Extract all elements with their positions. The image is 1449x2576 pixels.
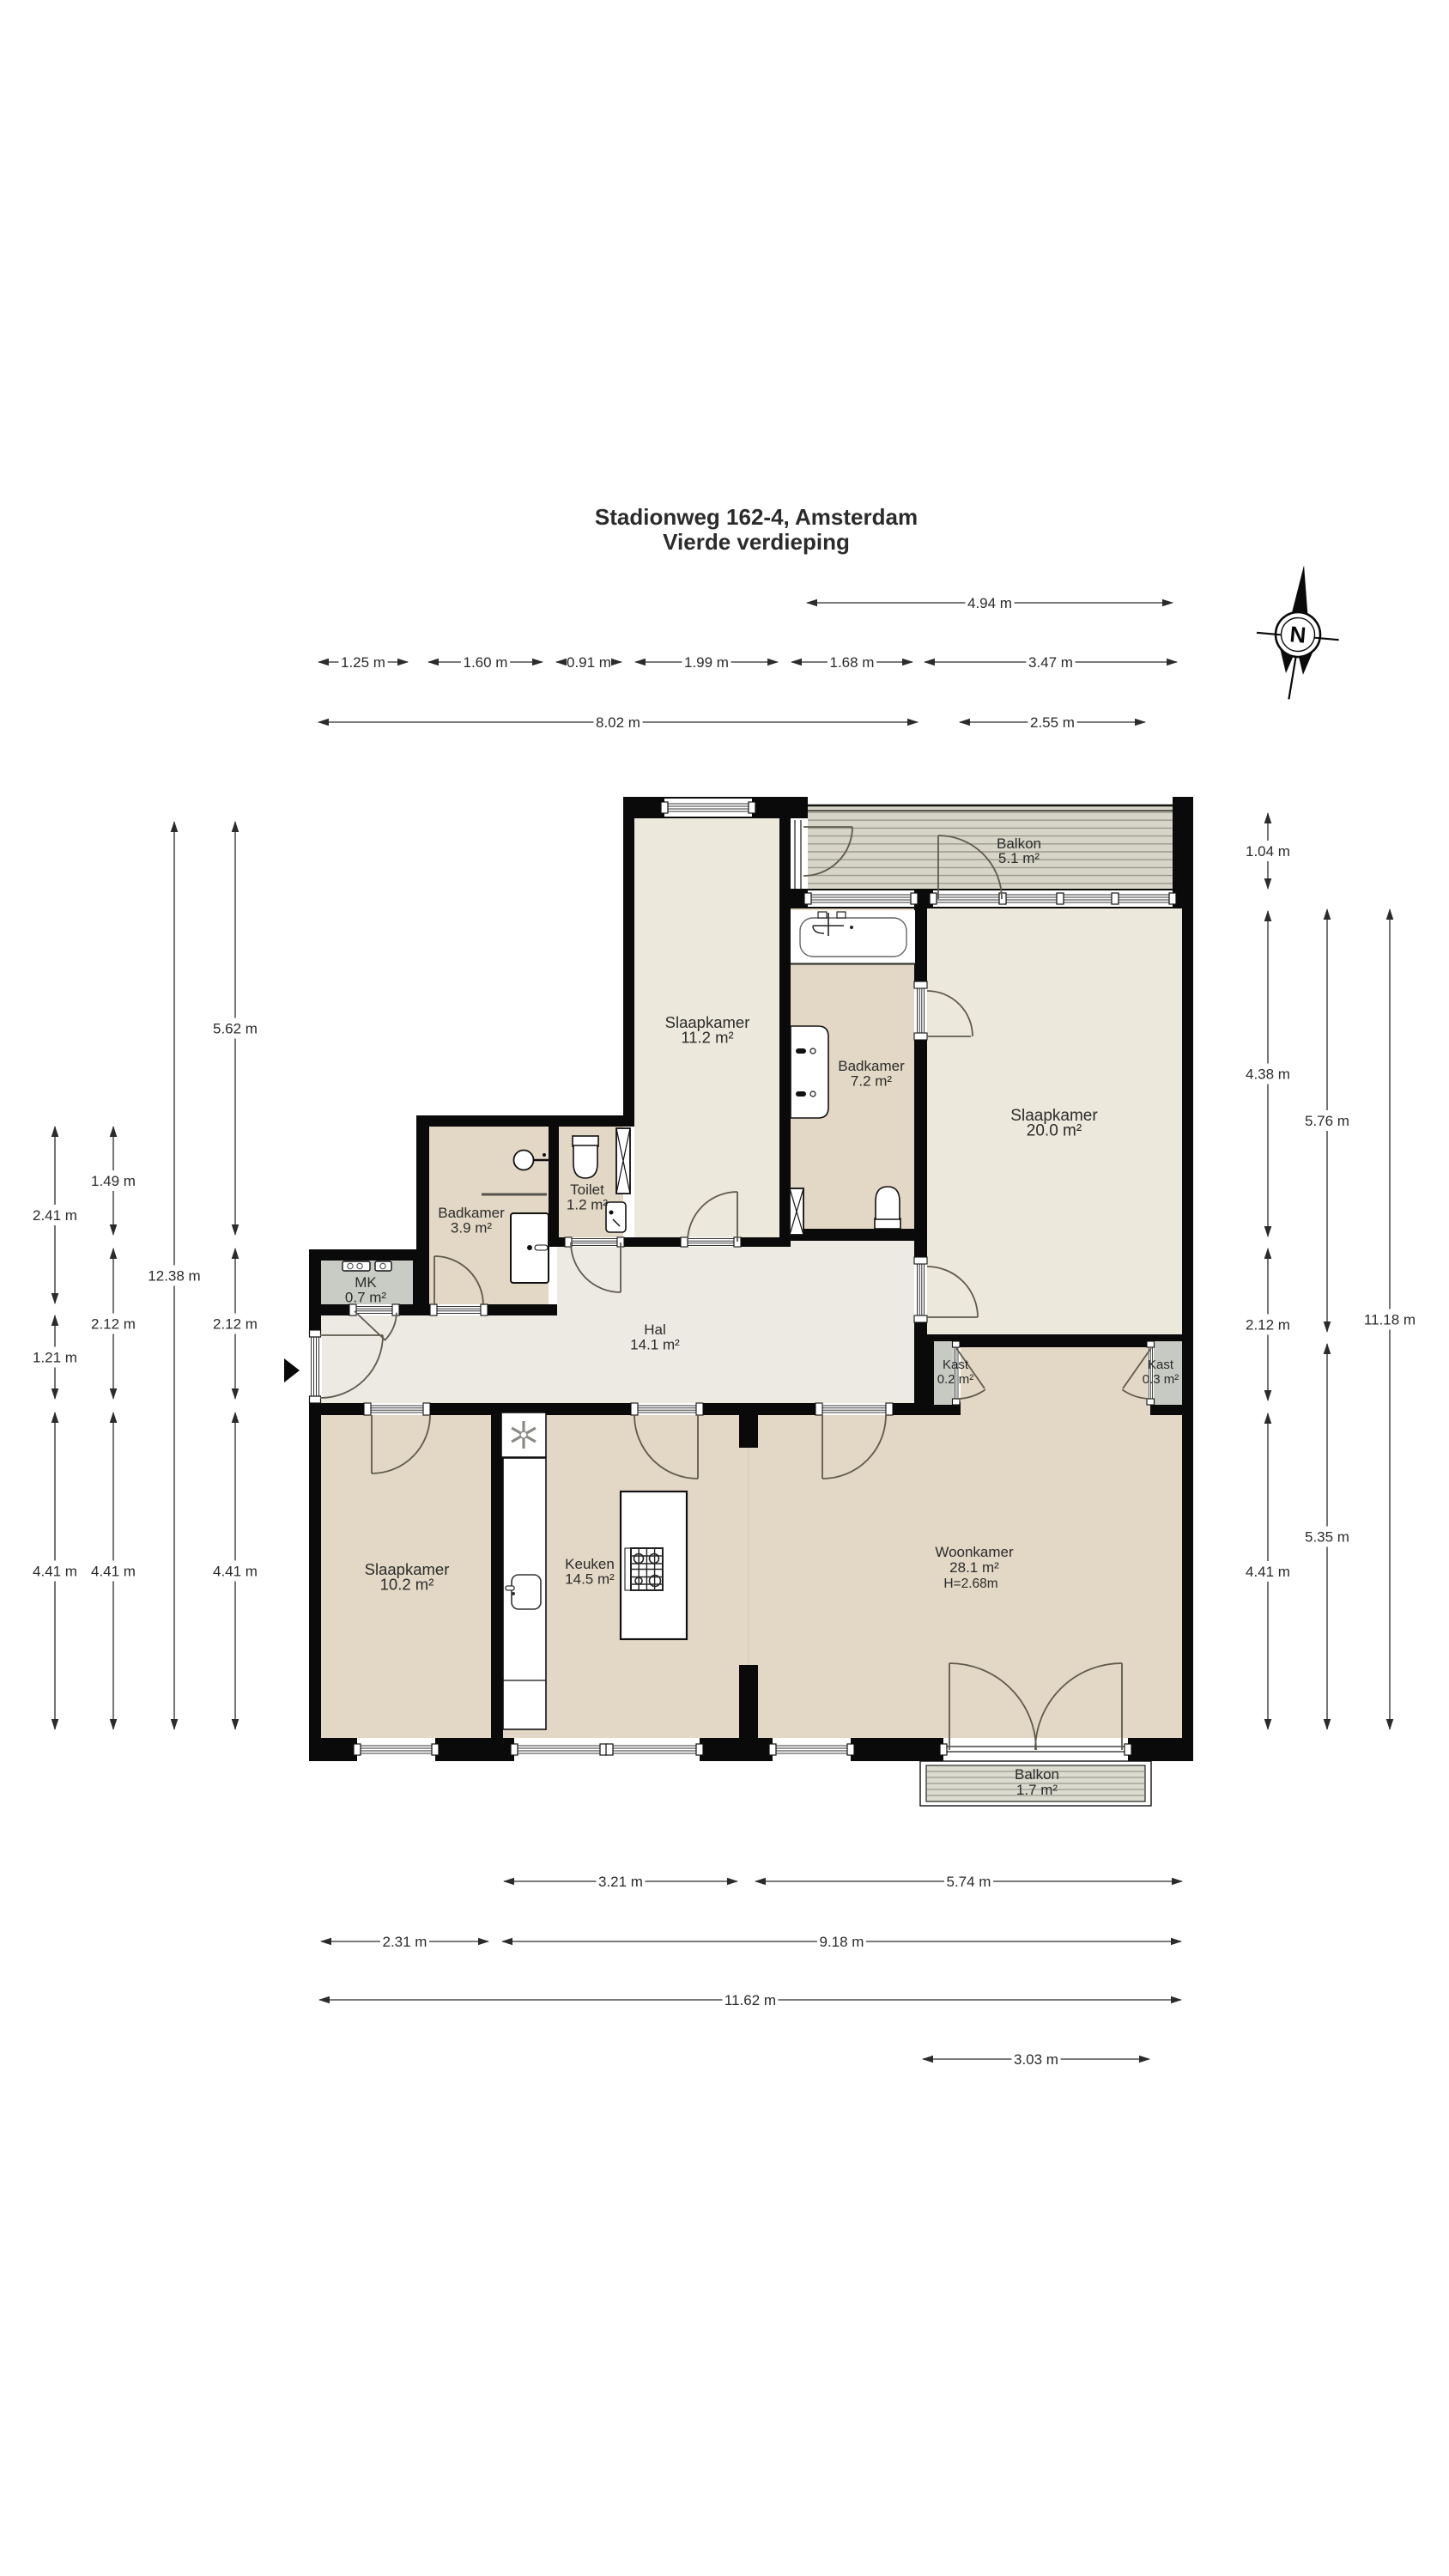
- svg-text:11.18 m: 11.18 m: [1364, 1311, 1416, 1327]
- svg-text:9.18 m: 9.18 m: [820, 1934, 864, 1950]
- svg-text:28.1 m²: 28.1 m²: [949, 1559, 999, 1576]
- svg-text:0.3 m²: 0.3 m²: [1143, 1372, 1179, 1387]
- svg-text:Kast: Kast: [1148, 1358, 1174, 1372]
- svg-text:1.25 m: 1.25 m: [341, 654, 385, 671]
- svg-text:Keuken: Keuken: [565, 1556, 615, 1572]
- svg-text:10.2 m²: 10.2 m²: [380, 1576, 434, 1594]
- svg-text:5.74 m: 5.74 m: [947, 1874, 991, 1890]
- svg-text:Balkon: Balkon: [1015, 1766, 1059, 1783]
- svg-text:1.68 m: 1.68 m: [830, 654, 875, 671]
- svg-text:MK: MK: [355, 1274, 377, 1291]
- svg-text:11.62 m: 11.62 m: [724, 1992, 776, 2008]
- svg-text:5.1 m²: 5.1 m²: [998, 850, 1040, 866]
- svg-text:4.41 m: 4.41 m: [91, 1563, 136, 1579]
- svg-text:2.12 m: 2.12 m: [91, 1315, 136, 1332]
- svg-text:8.02 m: 8.02 m: [596, 714, 640, 731]
- svg-text:0.7 m²: 0.7 m²: [345, 1290, 387, 1306]
- svg-text:7.2 m²: 7.2 m²: [851, 1073, 893, 1090]
- svg-text:5.76 m: 5.76 m: [1305, 1113, 1349, 1129]
- svg-text:3.03 m: 3.03 m: [1014, 2051, 1058, 2068]
- svg-text:Badkamer: Badkamer: [438, 1205, 505, 1221]
- svg-text:5.35 m: 5.35 m: [1305, 1528, 1349, 1545]
- svg-text:Stadionweg 162-4, Amsterdam: Stadionweg 162-4, Amsterdam: [595, 504, 918, 530]
- svg-text:2.41 m: 2.41 m: [33, 1207, 77, 1224]
- svg-text:3.9 m²: 3.9 m²: [451, 1220, 493, 1236]
- svg-text:1.2 m²: 1.2 m²: [567, 1197, 609, 1213]
- svg-text:Woonkamer: Woonkamer: [935, 1544, 1014, 1560]
- svg-text:1.99 m: 1.99 m: [684, 654, 729, 671]
- svg-text:1.49 m: 1.49 m: [91, 1173, 136, 1189]
- svg-text:Kast: Kast: [943, 1358, 969, 1372]
- svg-text:Toilet: Toilet: [570, 1182, 604, 1198]
- svg-text:0.2 m²: 0.2 m²: [937, 1372, 974, 1387]
- svg-text:2.12 m: 2.12 m: [1246, 1316, 1290, 1333]
- svg-text:2.55 m: 2.55 m: [1030, 714, 1075, 731]
- svg-text:0.91 m: 0.91 m: [567, 654, 611, 671]
- svg-text:4.41 m: 4.41 m: [33, 1563, 77, 1579]
- svg-text:H=2.68m: H=2.68m: [943, 1577, 997, 1591]
- svg-text:Hal: Hal: [644, 1321, 666, 1338]
- svg-text:N: N: [1288, 621, 1307, 648]
- svg-text:4.38 m: 4.38 m: [1246, 1066, 1290, 1082]
- svg-text:14.1 m²: 14.1 m²: [630, 1337, 680, 1353]
- svg-text:11.2 m²: 11.2 m²: [681, 1029, 733, 1047]
- svg-text:14.5 m²: 14.5 m²: [565, 1571, 615, 1588]
- svg-text:4.41 m: 4.41 m: [1246, 1564, 1290, 1580]
- svg-text:2.12 m: 2.12 m: [213, 1315, 258, 1332]
- svg-text:Vierde verdieping: Vierde verdieping: [663, 529, 850, 555]
- svg-text:20.0 m²: 20.0 m²: [1027, 1122, 1082, 1140]
- svg-text:3.47 m: 3.47 m: [1028, 654, 1073, 671]
- svg-text:2.31 m: 2.31 m: [383, 1934, 427, 1950]
- svg-text:1.04 m: 1.04 m: [1246, 843, 1290, 860]
- svg-text:5.62 m: 5.62 m: [213, 1020, 258, 1036]
- svg-text:12.38 m: 12.38 m: [148, 1267, 200, 1284]
- svg-text:4.94 m: 4.94 m: [967, 595, 1012, 611]
- svg-text:4.41 m: 4.41 m: [213, 1563, 258, 1579]
- svg-text:3.21 m: 3.21 m: [598, 1874, 643, 1890]
- svg-text:1.60 m: 1.60 m: [464, 654, 508, 671]
- svg-text:Badkamer: Badkamer: [838, 1058, 905, 1074]
- svg-text:1.7 m²: 1.7 m²: [1016, 1782, 1058, 1798]
- svg-text:1.21 m: 1.21 m: [33, 1349, 77, 1365]
